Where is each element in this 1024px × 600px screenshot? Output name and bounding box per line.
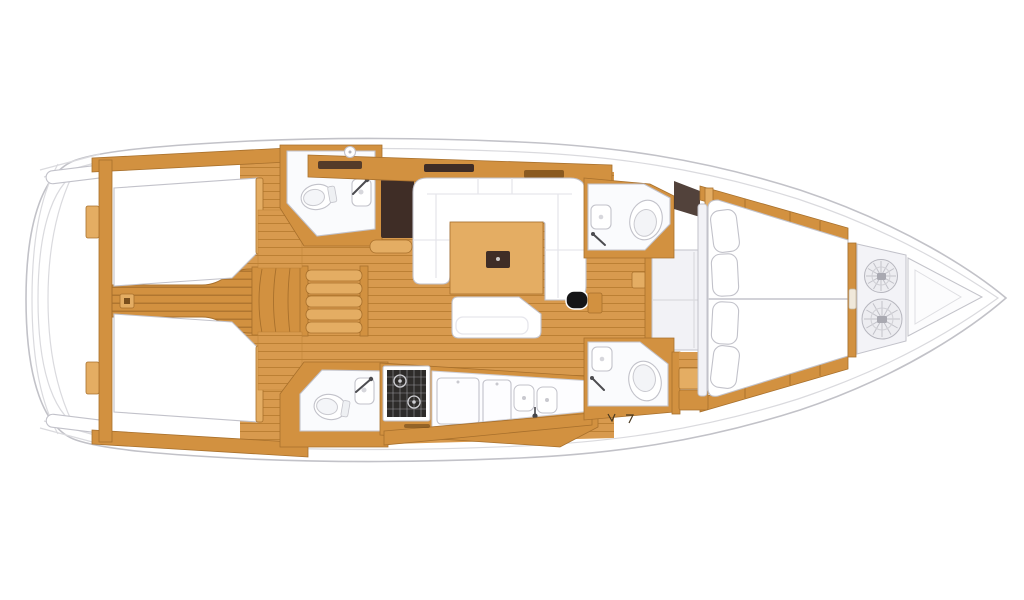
black-basin	[566, 291, 588, 309]
sink-drain	[359, 190, 364, 195]
vent-slot	[424, 164, 474, 172]
step-tread	[306, 296, 362, 307]
rope-coil-icon	[865, 260, 898, 293]
corridor-latch-slot	[124, 298, 130, 304]
mixer-knob	[591, 232, 595, 236]
aft-head-starboard	[280, 362, 388, 447]
step-tread	[306, 309, 362, 320]
forward-head-starboard	[584, 338, 674, 423]
table-hatch-dot	[496, 257, 500, 261]
bed-foot-board	[698, 204, 707, 396]
vent-slot	[524, 170, 564, 178]
nav-seat	[370, 240, 412, 253]
vent-slot	[318, 161, 362, 169]
lower-band-slot	[404, 424, 430, 428]
pillow-icon	[711, 253, 739, 296]
yacht-floor-plan	[0, 0, 1024, 600]
mixer-knob	[590, 376, 594, 380]
companionway-steps	[300, 266, 368, 336]
step-tread	[306, 270, 362, 281]
rope-coil-icon	[862, 299, 902, 339]
step-tread	[306, 283, 362, 294]
aft-bulkhead	[99, 160, 112, 442]
aft-trim-starboard	[86, 362, 99, 394]
deck-hatch-dot	[349, 151, 352, 154]
aft-cabin-starboard-berth	[114, 314, 258, 422]
aft-trim-port	[86, 206, 99, 238]
sink-drain	[362, 388, 367, 393]
stove-icon	[383, 366, 430, 421]
galley	[380, 363, 598, 447]
sink-drain	[599, 215, 604, 220]
basin-cabinet	[588, 293, 602, 313]
worktop-knob	[457, 381, 460, 384]
engine-cover	[252, 267, 302, 335]
worktop-knob	[496, 383, 499, 386]
chart-table	[381, 177, 414, 238]
step-tread	[306, 322, 362, 333]
aft-cabin-port-berth	[114, 178, 258, 286]
sink-drain	[600, 357, 605, 362]
headboard-cubby	[849, 289, 856, 309]
pillow-icon	[711, 301, 739, 344]
pillow-icon	[710, 209, 741, 254]
mixer-knob	[369, 377, 373, 381]
mast-post	[632, 272, 646, 288]
pillow-icon	[710, 345, 741, 390]
